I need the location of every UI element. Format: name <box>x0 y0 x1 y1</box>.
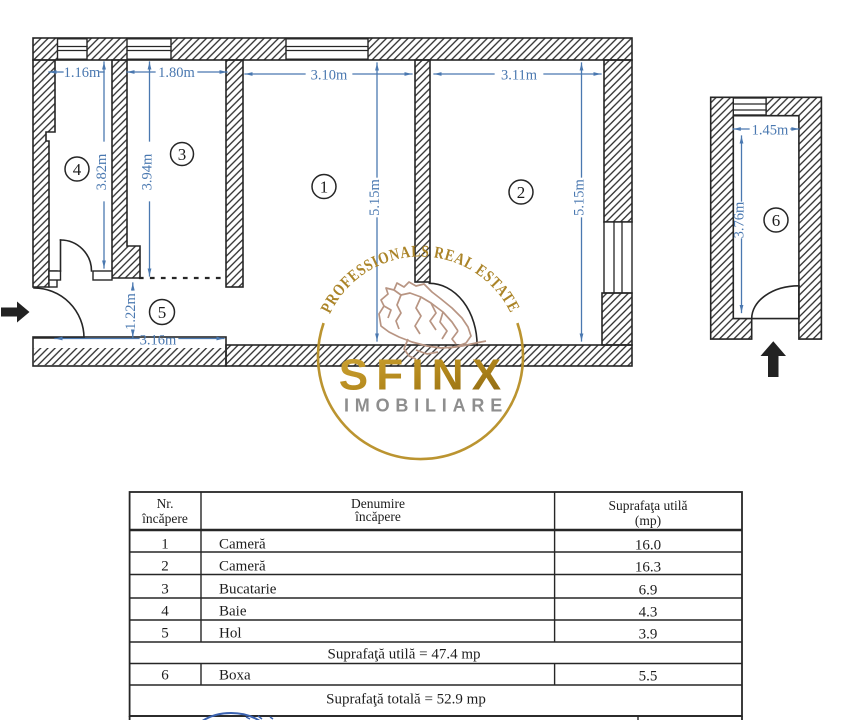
svg-text:4.3: 4.3 <box>639 605 658 621</box>
svg-text:6.9: 6.9 <box>639 583 658 599</box>
svg-text:Suprafaţă utilă = 47.4 mp: Suprafaţă utilă = 47.4 mp <box>327 647 480 663</box>
svg-text:1.16m: 1.16m <box>64 65 101 81</box>
svg-text:4: 4 <box>73 160 82 179</box>
svg-text:Suprafaţă totală = 52.9 mp: Suprafaţă totală = 52.9 mp <box>326 692 486 708</box>
svg-text:3.10m: 3.10m <box>311 68 348 84</box>
svg-text:2: 2 <box>161 559 169 575</box>
svg-text:1: 1 <box>161 537 169 553</box>
svg-text:1.22m: 1.22m <box>123 292 139 329</box>
svg-text:5: 5 <box>158 303 167 322</box>
svg-text:Boxa: Boxa <box>219 668 251 684</box>
svg-text:3.94m: 3.94m <box>140 153 156 190</box>
svg-text:3.76m: 3.76m <box>732 201 748 238</box>
svg-text:3.11m: 3.11m <box>501 68 538 84</box>
svg-text:Bucatarie: Bucatarie <box>219 582 277 598</box>
svg-text:16.3: 16.3 <box>635 560 661 576</box>
svg-text:4: 4 <box>161 604 169 620</box>
svg-text:1: 1 <box>320 178 329 197</box>
svg-text:3.82m: 3.82m <box>94 153 110 190</box>
svg-text:16.0: 16.0 <box>635 538 661 554</box>
svg-text:SFINX: SFINX <box>339 351 510 400</box>
svg-text:6: 6 <box>161 668 169 684</box>
svg-text:1.45m: 1.45m <box>752 123 789 139</box>
svg-text:5.5: 5.5 <box>639 669 658 685</box>
svg-text:3.9: 3.9 <box>639 627 658 643</box>
svg-text:3.16m: 3.16m <box>140 333 177 349</box>
svg-text:Baie: Baie <box>219 604 247 620</box>
svg-text:încăpere: încăpere <box>354 509 401 524</box>
svg-text:Cameră: Cameră <box>219 537 266 553</box>
svg-text:5.15m: 5.15m <box>572 178 588 215</box>
svg-text:încăpere: încăpere <box>141 511 188 526</box>
svg-text:Hol: Hol <box>219 626 242 642</box>
svg-text:3: 3 <box>178 145 187 164</box>
svg-text:Cameră: Cameră <box>219 559 266 575</box>
svg-text:IMOBILIARE: IMOBILIARE <box>344 396 508 416</box>
svg-text:Suprafaţa utilă: Suprafaţa utilă <box>608 498 687 513</box>
svg-text:5: 5 <box>161 626 169 642</box>
svg-text:3: 3 <box>161 582 169 598</box>
svg-text:5.15m: 5.15m <box>367 178 383 215</box>
svg-text:6: 6 <box>772 211 781 230</box>
svg-text:1.80m: 1.80m <box>158 65 195 81</box>
svg-text:(mp): (mp) <box>635 513 661 528</box>
svg-text:2: 2 <box>517 183 526 202</box>
svg-text:Nr.: Nr. <box>157 496 174 511</box>
